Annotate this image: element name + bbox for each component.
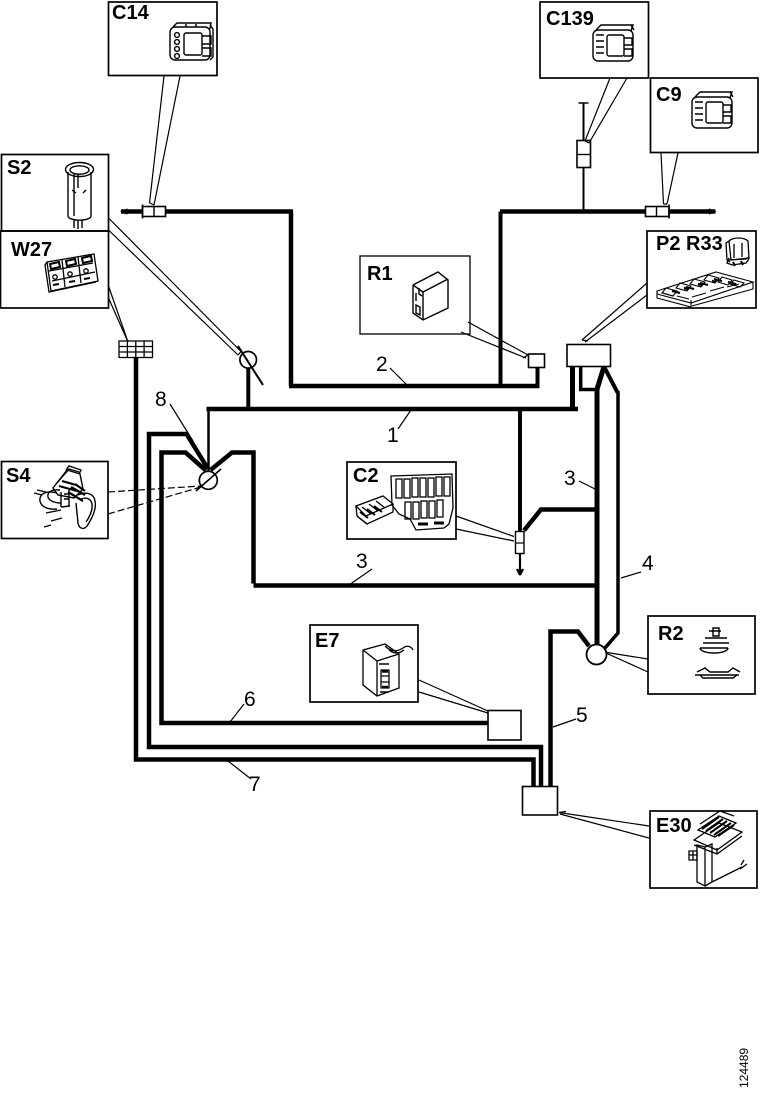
svg-text:8: 8 xyxy=(155,388,167,411)
svg-text:3: 3 xyxy=(356,550,368,573)
svg-text:C14: C14 xyxy=(112,2,150,24)
svg-text:W27: W27 xyxy=(11,239,52,261)
svg-text:S2: S2 xyxy=(7,157,31,179)
svg-text:C2: C2 xyxy=(353,465,379,487)
svg-text:C139: C139 xyxy=(546,8,594,30)
svg-text:2: 2 xyxy=(376,353,388,376)
svg-text:5: 5 xyxy=(576,704,588,727)
svg-text:6: 6 xyxy=(244,688,256,711)
svg-text:E30: E30 xyxy=(656,815,692,837)
svg-text:4: 4 xyxy=(642,552,654,575)
svg-text:1: 1 xyxy=(387,424,399,447)
svg-text:R2: R2 xyxy=(658,623,684,645)
svg-text:S4: S4 xyxy=(6,465,31,487)
svg-text:3: 3 xyxy=(564,467,576,490)
svg-text:7: 7 xyxy=(249,773,261,796)
svg-text:C9: C9 xyxy=(656,84,682,106)
svg-text:E7: E7 xyxy=(315,630,339,652)
svg-text:124489: 124489 xyxy=(737,1048,751,1088)
svg-text:R1: R1 xyxy=(367,263,393,285)
svg-text:P2 R33: P2 R33 xyxy=(656,233,723,255)
